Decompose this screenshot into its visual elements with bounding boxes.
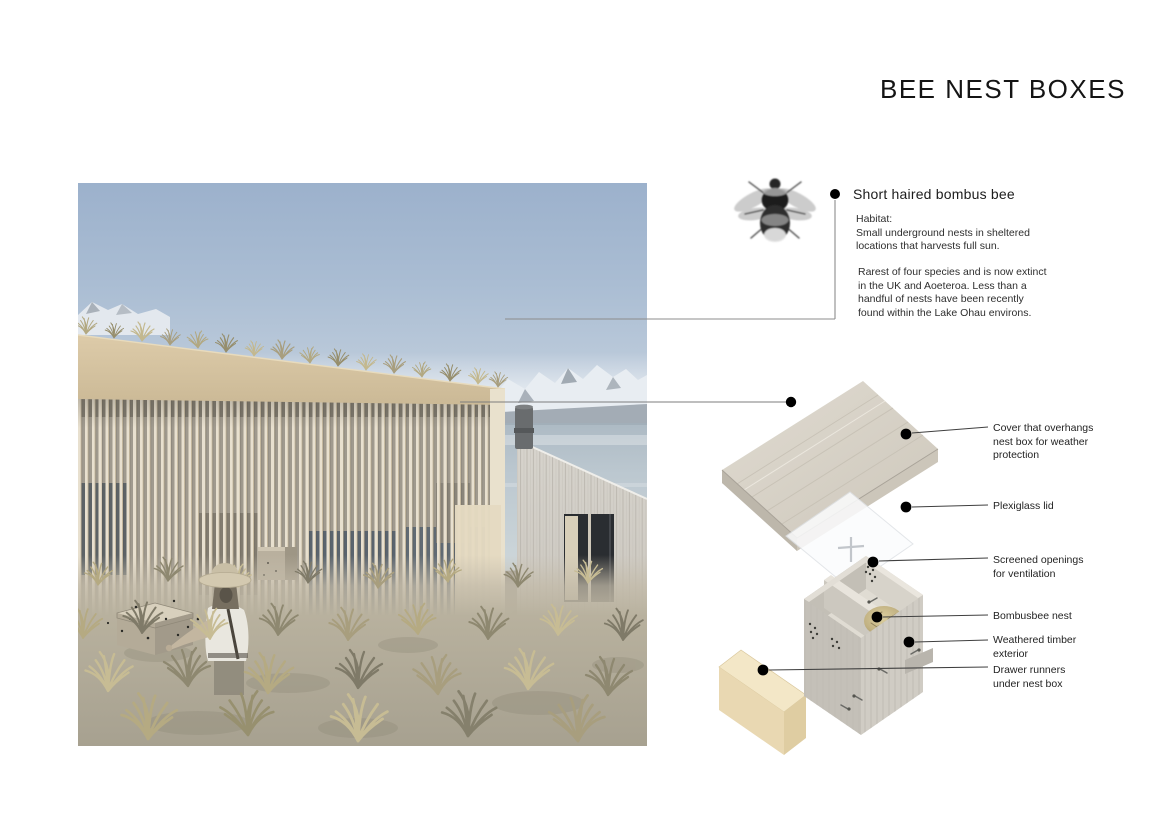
- dot-cover: [901, 429, 912, 440]
- drawer-base: [719, 650, 806, 755]
- dot-weathered-timber: [904, 637, 915, 648]
- screw-heads: [847, 600, 920, 710]
- exploded-diagram: [719, 381, 988, 755]
- callout-label-plexiglass: Plexiglass lid: [993, 500, 1111, 514]
- page-title: BEE NEST BOXES: [880, 74, 1126, 105]
- cover-part: [722, 381, 938, 551]
- dot-nest: [872, 612, 883, 623]
- screws: [841, 598, 918, 709]
- nest-box-part: [719, 556, 933, 755]
- plexiglass-lid-part: [786, 492, 913, 588]
- cover-position-dot: [786, 397, 796, 407]
- architectural-render-image: [78, 183, 647, 746]
- callout-dots: [758, 429, 915, 676]
- callout-label-bombusbee-nest: Bombusbee nest: [993, 610, 1111, 624]
- callout-leaders: [769, 427, 988, 670]
- dot-plexiglass: [901, 502, 912, 513]
- callout-label-cover: Cover that overhangs nest box for weathe…: [993, 422, 1111, 463]
- scene-foreground: [78, 183, 647, 746]
- vent-holes: [809, 566, 876, 649]
- bee-rarity-text: Rarest of four species and is now extinc…: [858, 266, 1054, 320]
- presentation-board: BEE NEST BOXES Short haired bombus bee H…: [0, 0, 1168, 826]
- bee-callout-dot: [830, 189, 840, 199]
- dot-drawer-runners: [758, 665, 769, 676]
- roof-fascia: [78, 335, 505, 405]
- bombusbee-nest: [864, 606, 904, 636]
- callout-label-screened-openings: Screened openings for ventilation: [993, 554, 1111, 581]
- callout-label-drawer-runners: Drawer runners under nest box: [993, 664, 1111, 691]
- callout-label-weathered-timber: Weathered timber exterior: [993, 634, 1111, 661]
- bee-habitat-text: Habitat: Small underground nests in shel…: [856, 213, 1036, 254]
- bee-species-heading: Short haired bombus bee: [853, 186, 1015, 202]
- bee-photo: [731, 179, 819, 243]
- dot-screened-openings: [868, 557, 879, 568]
